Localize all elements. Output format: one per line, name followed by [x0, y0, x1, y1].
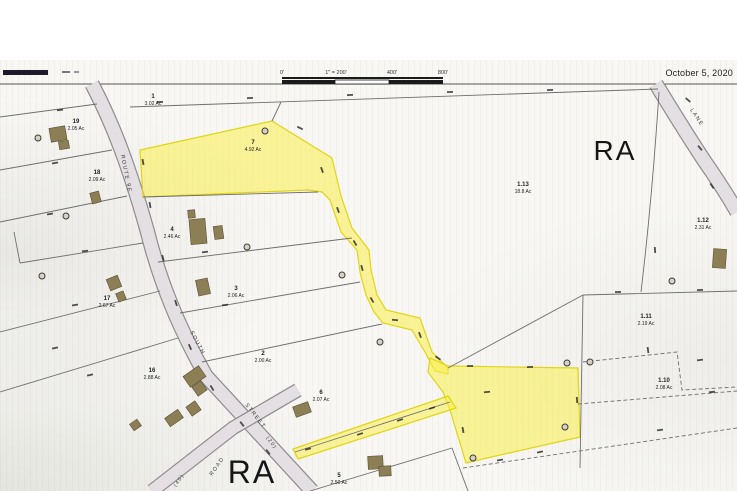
dimension-mark	[52, 162, 58, 165]
boundary-line	[20, 243, 143, 263]
parcel-number-label: 1.11	[640, 314, 652, 320]
boundary-line	[580, 295, 583, 468]
highlighted-access-strip	[293, 396, 456, 459]
well-icon	[244, 244, 250, 250]
parcel-number-label: 1	[151, 94, 155, 100]
dimension-mark	[654, 247, 656, 253]
building-footprint	[130, 419, 142, 431]
building-footprint	[189, 218, 207, 244]
dimension-mark	[222, 304, 228, 307]
building-footprint	[90, 191, 102, 204]
scale-bar-label: 400'	[387, 70, 397, 76]
boundary-line	[272, 102, 281, 121]
dimension-mark	[202, 251, 208, 254]
dimension-mark	[615, 291, 621, 293]
well-icon	[669, 278, 675, 284]
boundary-line-dashed	[578, 391, 737, 404]
parcel-acreage-label: 2.88 Ac	[144, 375, 161, 381]
dimension-mark	[52, 346, 58, 349]
dimension-mark	[697, 359, 703, 362]
parcel-acreage-label: 2.00 Ac	[255, 358, 272, 364]
building-footprint	[195, 278, 210, 296]
building-footprint	[188, 210, 196, 219]
building-footprint	[165, 409, 184, 426]
parcel-number-label: 2	[261, 351, 265, 357]
scale-bar-segment	[282, 80, 335, 84]
building-footprint	[106, 275, 122, 291]
well-icon	[470, 455, 476, 461]
dimension-mark	[697, 289, 703, 291]
dimension-mark	[527, 366, 533, 368]
scale-bar-label: 800'	[438, 70, 448, 76]
scale-bar-label: 0'	[280, 70, 284, 76]
building-footprint	[712, 249, 726, 269]
parcel-acreage-label: 2.31 Ac	[695, 225, 712, 231]
dimension-mark	[447, 91, 453, 93]
dimension-mark	[149, 202, 152, 208]
boundary-line	[448, 295, 583, 368]
parcel-map-svg: 0'1" = 200'400'800'ROUTE 9ESOUTHSTREET(2…	[0, 0, 737, 491]
parcel-number-label: 4	[170, 227, 174, 233]
dimension-mark	[497, 459, 503, 462]
well-icon	[63, 213, 69, 219]
parcel-number-label: 3	[234, 286, 238, 292]
parcel-number-label: 17	[104, 296, 111, 302]
scale-bar-segment	[335, 80, 389, 84]
dimension-mark	[467, 365, 473, 367]
parcel-number-label: 16	[149, 368, 156, 374]
scale-bar-label: 1" = 200'	[325, 70, 347, 76]
dimension-mark	[537, 450, 543, 453]
parcel-acreage-label: 3.02 Ac	[145, 101, 162, 107]
well-icon	[39, 273, 45, 279]
well-icon	[587, 359, 593, 365]
road-name-label: ROAD	[209, 456, 226, 477]
parcel-acreage-label: 2.50 Ac	[331, 480, 348, 486]
boundary-line	[158, 238, 352, 262]
parcel-acreage-label: 2.09 Ac	[89, 177, 106, 183]
dimension-mark	[87, 373, 93, 376]
boundary-curve	[641, 92, 659, 292]
road-name-label: LANE	[688, 108, 704, 128]
parcel-number-label: 1.12	[697, 218, 709, 224]
scale-bar-segment	[389, 80, 443, 84]
building-footprint	[49, 126, 67, 143]
parcel-number-label: 1.10	[658, 378, 670, 384]
road-lane	[656, 84, 737, 212]
well-icon	[564, 360, 570, 366]
parcel-acreage-label: 2.67 Ac	[99, 303, 116, 309]
parcel-acreage-label: 2.46 Ac	[164, 234, 181, 240]
parcel-acreage-label: 2.07 Ac	[313, 397, 330, 403]
legend-bar	[3, 70, 48, 75]
boundary-line	[0, 338, 178, 392]
parcel-acreage-label: 4.92 Ac	[245, 147, 262, 153]
parcel-number-label: 1.13	[517, 182, 529, 188]
boundary-line	[202, 324, 382, 362]
well-icon	[35, 135, 41, 141]
parcel-number-label: 18	[94, 170, 101, 176]
dimension-mark	[47, 213, 53, 216]
dimension-mark	[297, 126, 303, 130]
well-icon	[262, 128, 268, 134]
boundary-line	[0, 104, 97, 117]
boundary-line	[130, 89, 658, 107]
parcel-acreage-label: 18.8 Ac	[515, 189, 532, 195]
zone-label-ra: RA	[594, 135, 637, 166]
well-icon	[377, 339, 383, 345]
legend-mark	[62, 71, 70, 73]
dimension-mark	[685, 97, 691, 102]
dimension-mark	[547, 89, 553, 91]
legend-mark	[74, 71, 79, 73]
dimension-mark	[647, 347, 650, 353]
building-footprint	[186, 401, 201, 416]
parcel-acreage-label: 2.19 Ac	[638, 321, 655, 327]
boundary-line	[0, 150, 112, 170]
building-footprint	[379, 466, 392, 477]
dimension-mark	[72, 304, 78, 307]
dimension-mark	[657, 429, 663, 432]
zone-label-ra: RA	[228, 454, 276, 490]
parcel-number-label: 19	[73, 119, 80, 125]
parcel-number-label: 5	[337, 473, 341, 479]
boundary-line	[14, 232, 20, 263]
well-icon	[562, 424, 568, 430]
tax-map-screenshot: October 5, 2020 0'1" = 200'400'800'ROUTE…	[0, 0, 737, 491]
highlighted-large-rear-parcel	[428, 358, 580, 463]
dimension-mark	[347, 94, 353, 96]
parcel-acreage-label: 2.08 Ac	[656, 385, 673, 391]
building-footprint	[213, 225, 224, 239]
parcel-number-label: 6	[319, 390, 323, 396]
boundary-line	[0, 291, 160, 332]
dimension-mark	[247, 97, 253, 99]
building-footprint	[293, 402, 312, 418]
building-footprint	[58, 140, 69, 150]
boundary-line	[583, 291, 737, 295]
well-icon	[339, 272, 345, 278]
parcel-acreage-label: 2.05 Ac	[68, 126, 85, 132]
parcel-acreage-label: 2.06 Ac	[228, 293, 245, 299]
boundary-line	[295, 402, 450, 452]
scale-bar-line	[282, 77, 443, 79]
